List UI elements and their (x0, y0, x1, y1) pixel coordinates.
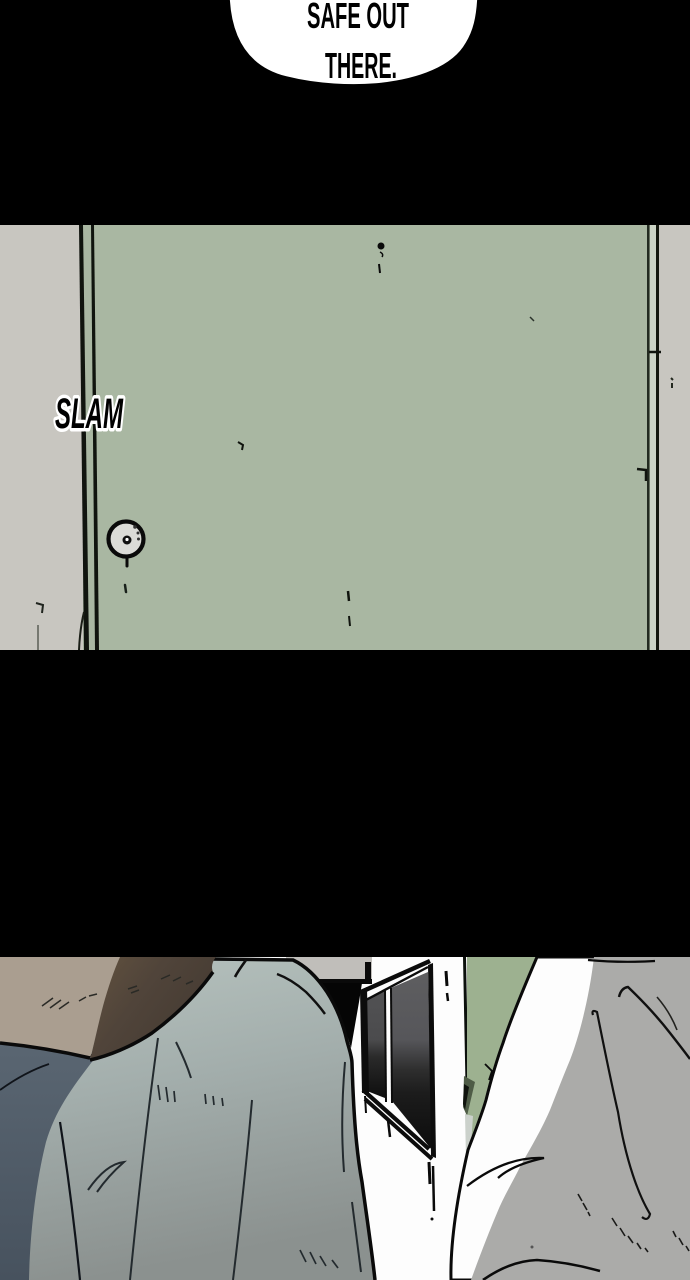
svg-text:SLAM: SLAM (55, 390, 124, 438)
svg-text:SAFE OUT: SAFE OUT (307, 0, 409, 36)
svg-text:THERE.: THERE. (325, 45, 397, 86)
